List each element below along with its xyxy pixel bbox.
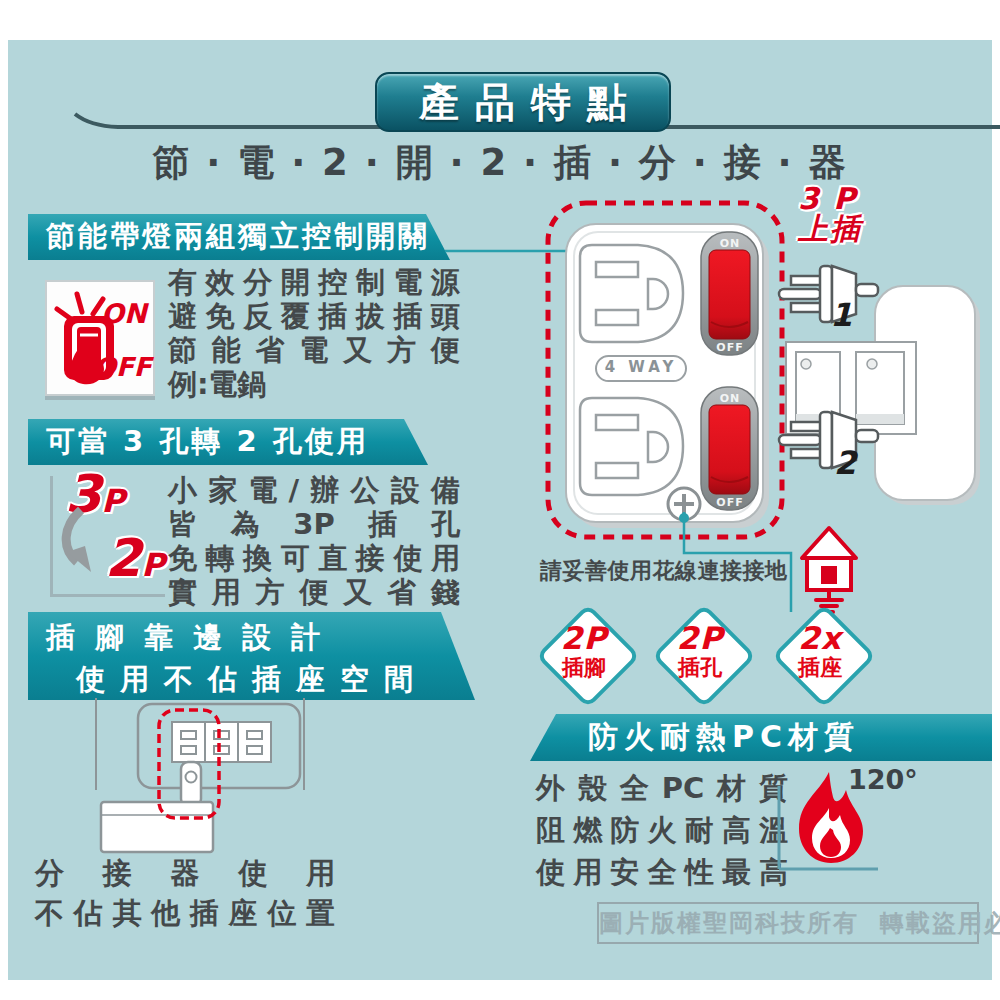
outlet-top: [580, 245, 683, 342]
section-banner-edge-design: 插腳靠邊設計 使用不佔插座空間: [28, 612, 475, 700]
fireproof-text: 外殼全PC材質 阻燃防火耐高溫 使用安全性最高: [536, 768, 788, 894]
3to2-text: 小家電/辦公設備 皆為3P插孔 免轉換可直接使用 實用方便又省錢: [168, 474, 460, 610]
text-line: 節能省電又方便: [168, 334, 460, 367]
text-line: 免轉換可直接使用: [168, 542, 460, 575]
text-line: 小家電/辦公設備: [168, 474, 460, 507]
text-line: 例:電鍋: [168, 368, 460, 401]
section-banner-text: 可當 3 孔轉 2 孔使用: [28, 422, 369, 462]
section-banner-text: 節能帶燈兩組獨立控制開關: [28, 217, 430, 257]
text-line: 外殼全PC材質: [536, 768, 788, 809]
switch2-off-label: OFF: [710, 496, 750, 509]
text-line: 避免反覆插拔插頭: [168, 300, 460, 333]
banner-line-1: 插腳靠邊設計: [46, 618, 340, 658]
text-line: 阻燃防火耐高溫: [536, 810, 788, 851]
copyright-watermark: 圖片版權聖岡科技所有 轉載盜用必究: [597, 902, 979, 944]
text-line: 實用方便又省錢: [168, 576, 460, 609]
badge-2x-sockets-text: 2x 插座: [765, 625, 875, 681]
switch1-on-label: ON: [710, 237, 750, 250]
text-line: 皆為3P插孔: [168, 508, 460, 541]
banner-line-2: 使用不佔插座空間: [76, 660, 428, 700]
2p-label: 2P: [105, 528, 165, 588]
ground-note: 請妥善使用花線連接接地: [540, 556, 788, 586]
4way-label: 4 WAY: [597, 358, 685, 376]
rocker-switch-bottom: [701, 387, 758, 510]
product-feature-infographic: 產品特點 節 · 電 · 2 · 開 · 2 · 插 · 分 · 接 · 器 節…: [0, 0, 1000, 1000]
3p-top-insert-label: 3 P 上插: [798, 184, 862, 244]
switch2-on-label: ON: [710, 392, 750, 405]
text-line: 使用安全性最高: [536, 852, 788, 893]
edge-design-caption: 分接器使用 不佔其他插座位置: [35, 854, 335, 934]
3p-to-2p-icon: 3P 2P: [50, 476, 165, 597]
title-banner: 產品特點: [375, 72, 671, 132]
page-title: 產品特點: [403, 75, 643, 130]
badge-2p-pins-text: 2P 插腳: [529, 625, 639, 681]
plug-2-number: 2: [834, 444, 856, 482]
switch-light-icon: ON OFF: [45, 280, 155, 396]
temperature-label: 120°: [848, 764, 918, 795]
switch-control-text: 有效分開控制電源 避免反覆插拔插頭 節能省電又方便 例:電鍋: [168, 266, 460, 402]
wall-outlet-diagram: [88, 698, 328, 858]
plug-blade: [181, 762, 201, 806]
text-line: 有效分開控制電源: [168, 266, 460, 299]
plug-1-icon: [779, 266, 878, 322]
switch1-off-label: OFF: [710, 341, 750, 354]
rocker-switch-top: [701, 232, 758, 355]
outlet-bottom: [580, 398, 683, 495]
section-banner-switch-control: 節能帶燈兩組獨立控制開關: [28, 214, 450, 260]
section-banner-3to2: 可當 3 孔轉 2 孔使用: [28, 419, 428, 465]
switch-on-label: ON: [101, 298, 147, 329]
adapter-side-view: [101, 802, 213, 852]
caption-line: 不佔其他插座位置: [35, 894, 335, 933]
section-banner-fireproof: 防火耐熱PC材質: [530, 714, 992, 761]
house-ground-icon: [798, 524, 860, 616]
plug-1-number: 1: [830, 296, 852, 334]
switch-off-label: OFF: [94, 352, 152, 382]
section-banner-text: 防火耐熱PC材質: [530, 717, 860, 758]
badge-2p-holes-text: 2P 插孔: [645, 625, 755, 681]
caption-line: 分接器使用: [35, 854, 335, 893]
